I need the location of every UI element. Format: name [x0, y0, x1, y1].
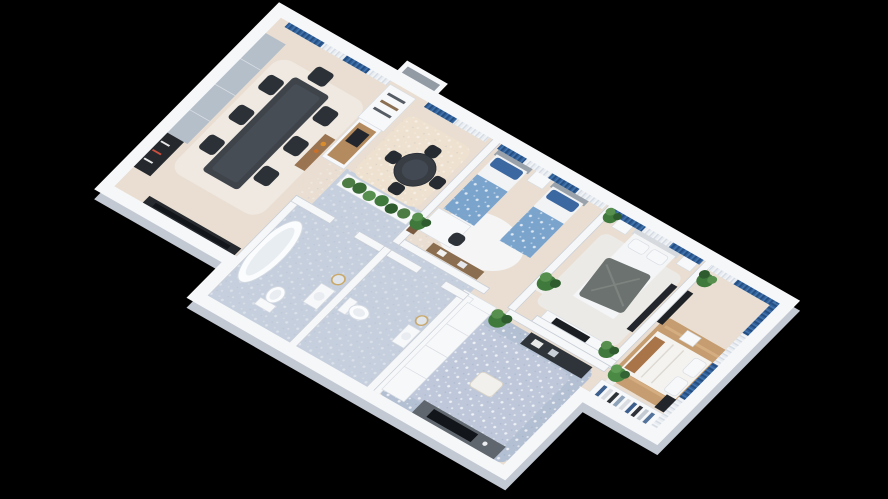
floorplan-render: [0, 0, 888, 499]
render-viewport[interactable]: [0, 0, 888, 499]
